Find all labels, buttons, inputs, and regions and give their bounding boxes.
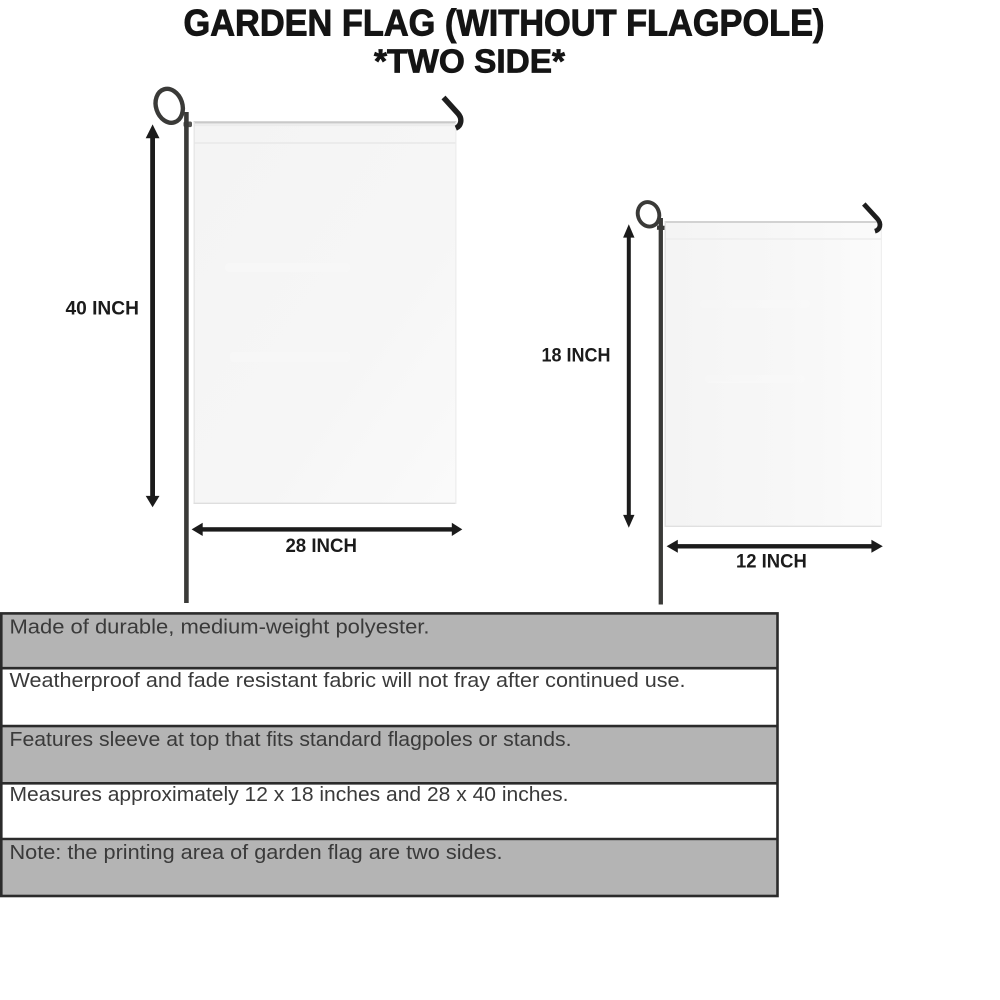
svg-text:Made of durable, medium-weight: Made of durable, medium-weight polyester… bbox=[10, 616, 430, 638]
svg-text:40 INCH: 40 INCH bbox=[65, 298, 139, 320]
svg-text:Features sleeve at top that fi: Features sleeve at top that fits standar… bbox=[10, 729, 572, 751]
svg-text:28 INCH: 28 INCH bbox=[285, 535, 357, 557]
svg-text:GARDEN FLAG (WITHOUT FLAGPOLE): GARDEN FLAG (WITHOUT FLAGPOLE) bbox=[184, 3, 825, 44]
svg-text:Weatherproof and fade resistan: Weatherproof and fade resistant fabric w… bbox=[10, 670, 686, 692]
svg-text:18 INCH: 18 INCH bbox=[542, 345, 611, 367]
svg-text:Note: the printing area of gar: Note: the printing area of garden flag a… bbox=[10, 842, 503, 864]
svg-text:*TWO SIDE*: *TWO SIDE* bbox=[374, 42, 565, 79]
svg-text:Measures approximately 12 x 18: Measures approximately 12 x 18 inches an… bbox=[10, 784, 569, 806]
svg-text:12 INCH: 12 INCH bbox=[736, 551, 807, 573]
